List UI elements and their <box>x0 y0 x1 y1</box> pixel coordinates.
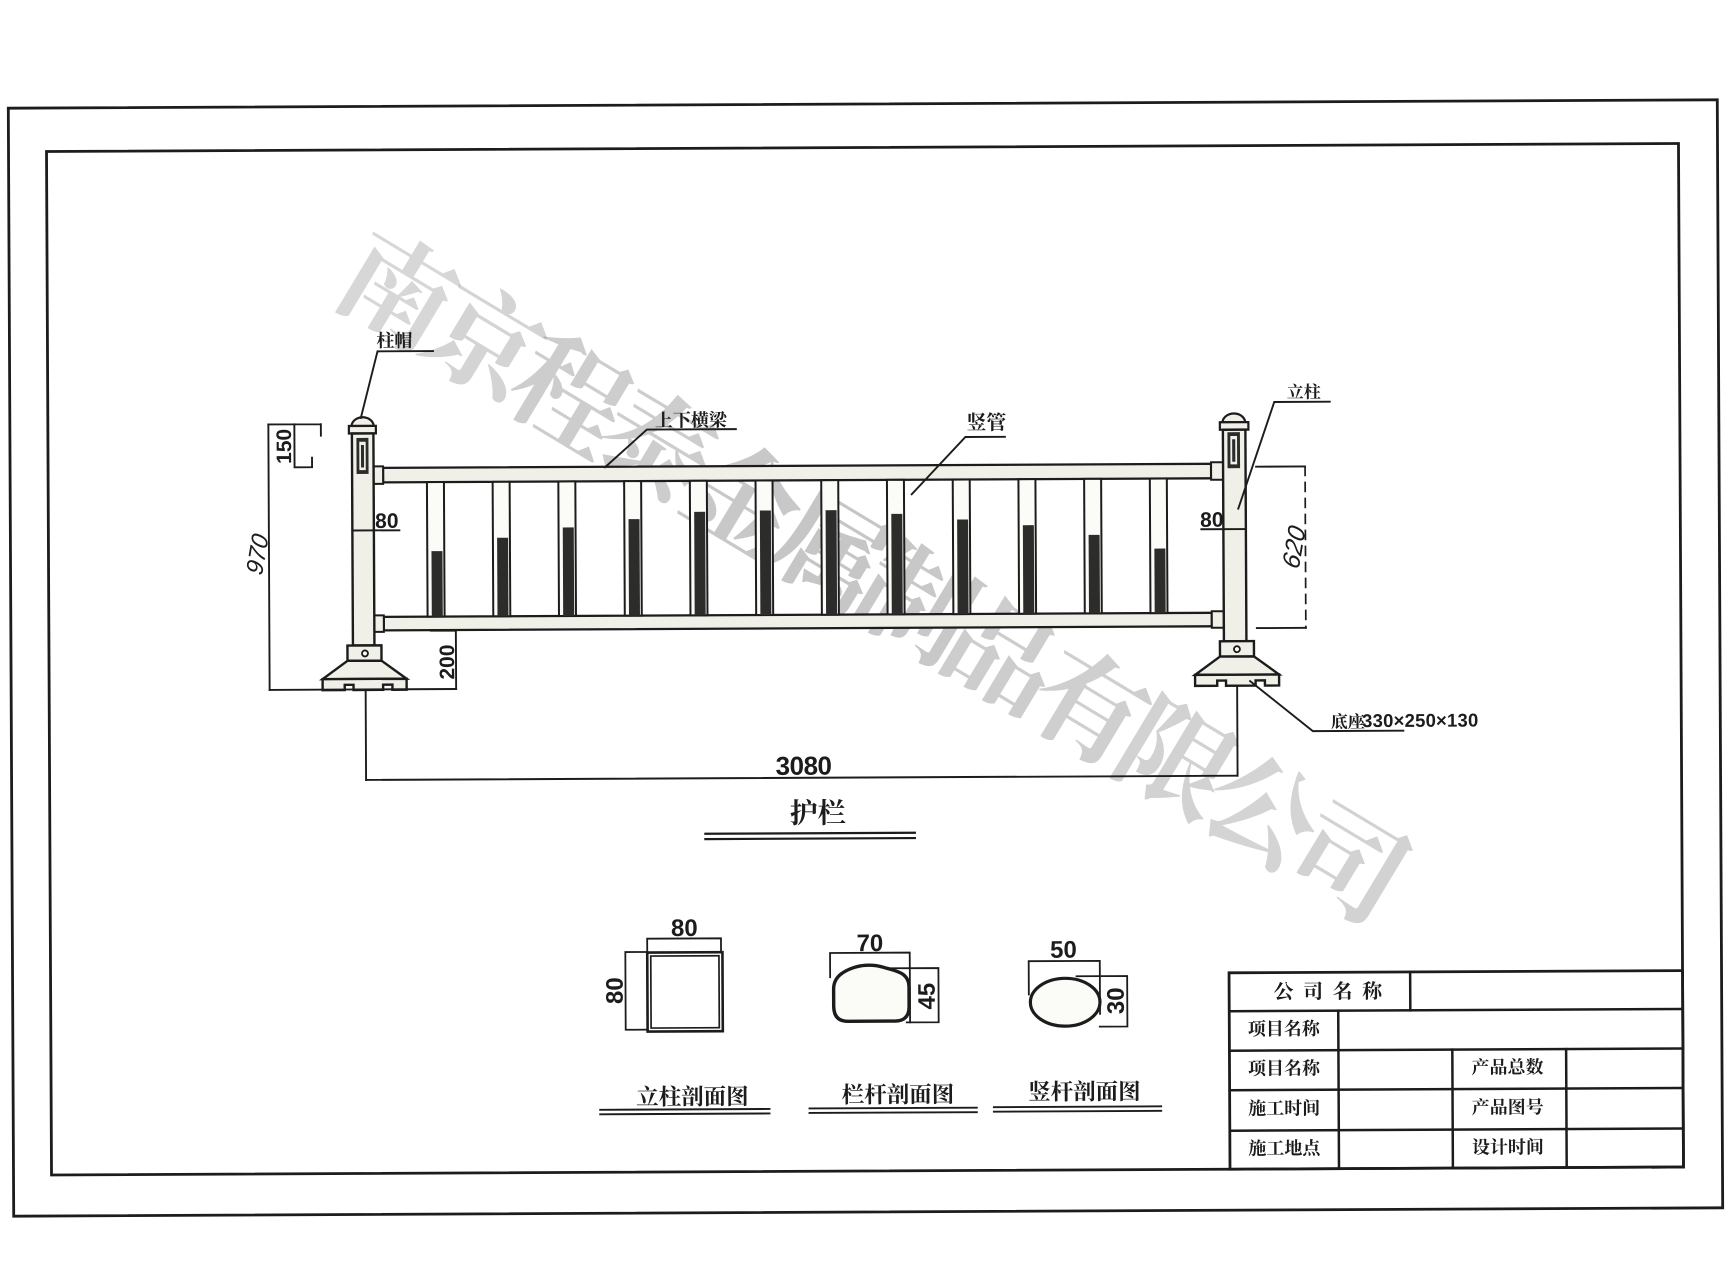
svg-text:150: 150 <box>273 429 296 464</box>
svg-text:330×250×130: 330×250×130 <box>1362 710 1479 732</box>
svg-text:45: 45 <box>914 983 941 1010</box>
svg-text:30: 30 <box>1103 987 1130 1014</box>
svg-text:50: 50 <box>1050 937 1077 964</box>
svg-text:200: 200 <box>436 644 459 679</box>
svg-text:80: 80 <box>375 510 398 533</box>
svg-text:80: 80 <box>602 977 629 1004</box>
svg-text:3080: 3080 <box>776 751 832 781</box>
svg-text:80: 80 <box>1200 509 1223 532</box>
svg-text:80: 80 <box>671 915 698 942</box>
